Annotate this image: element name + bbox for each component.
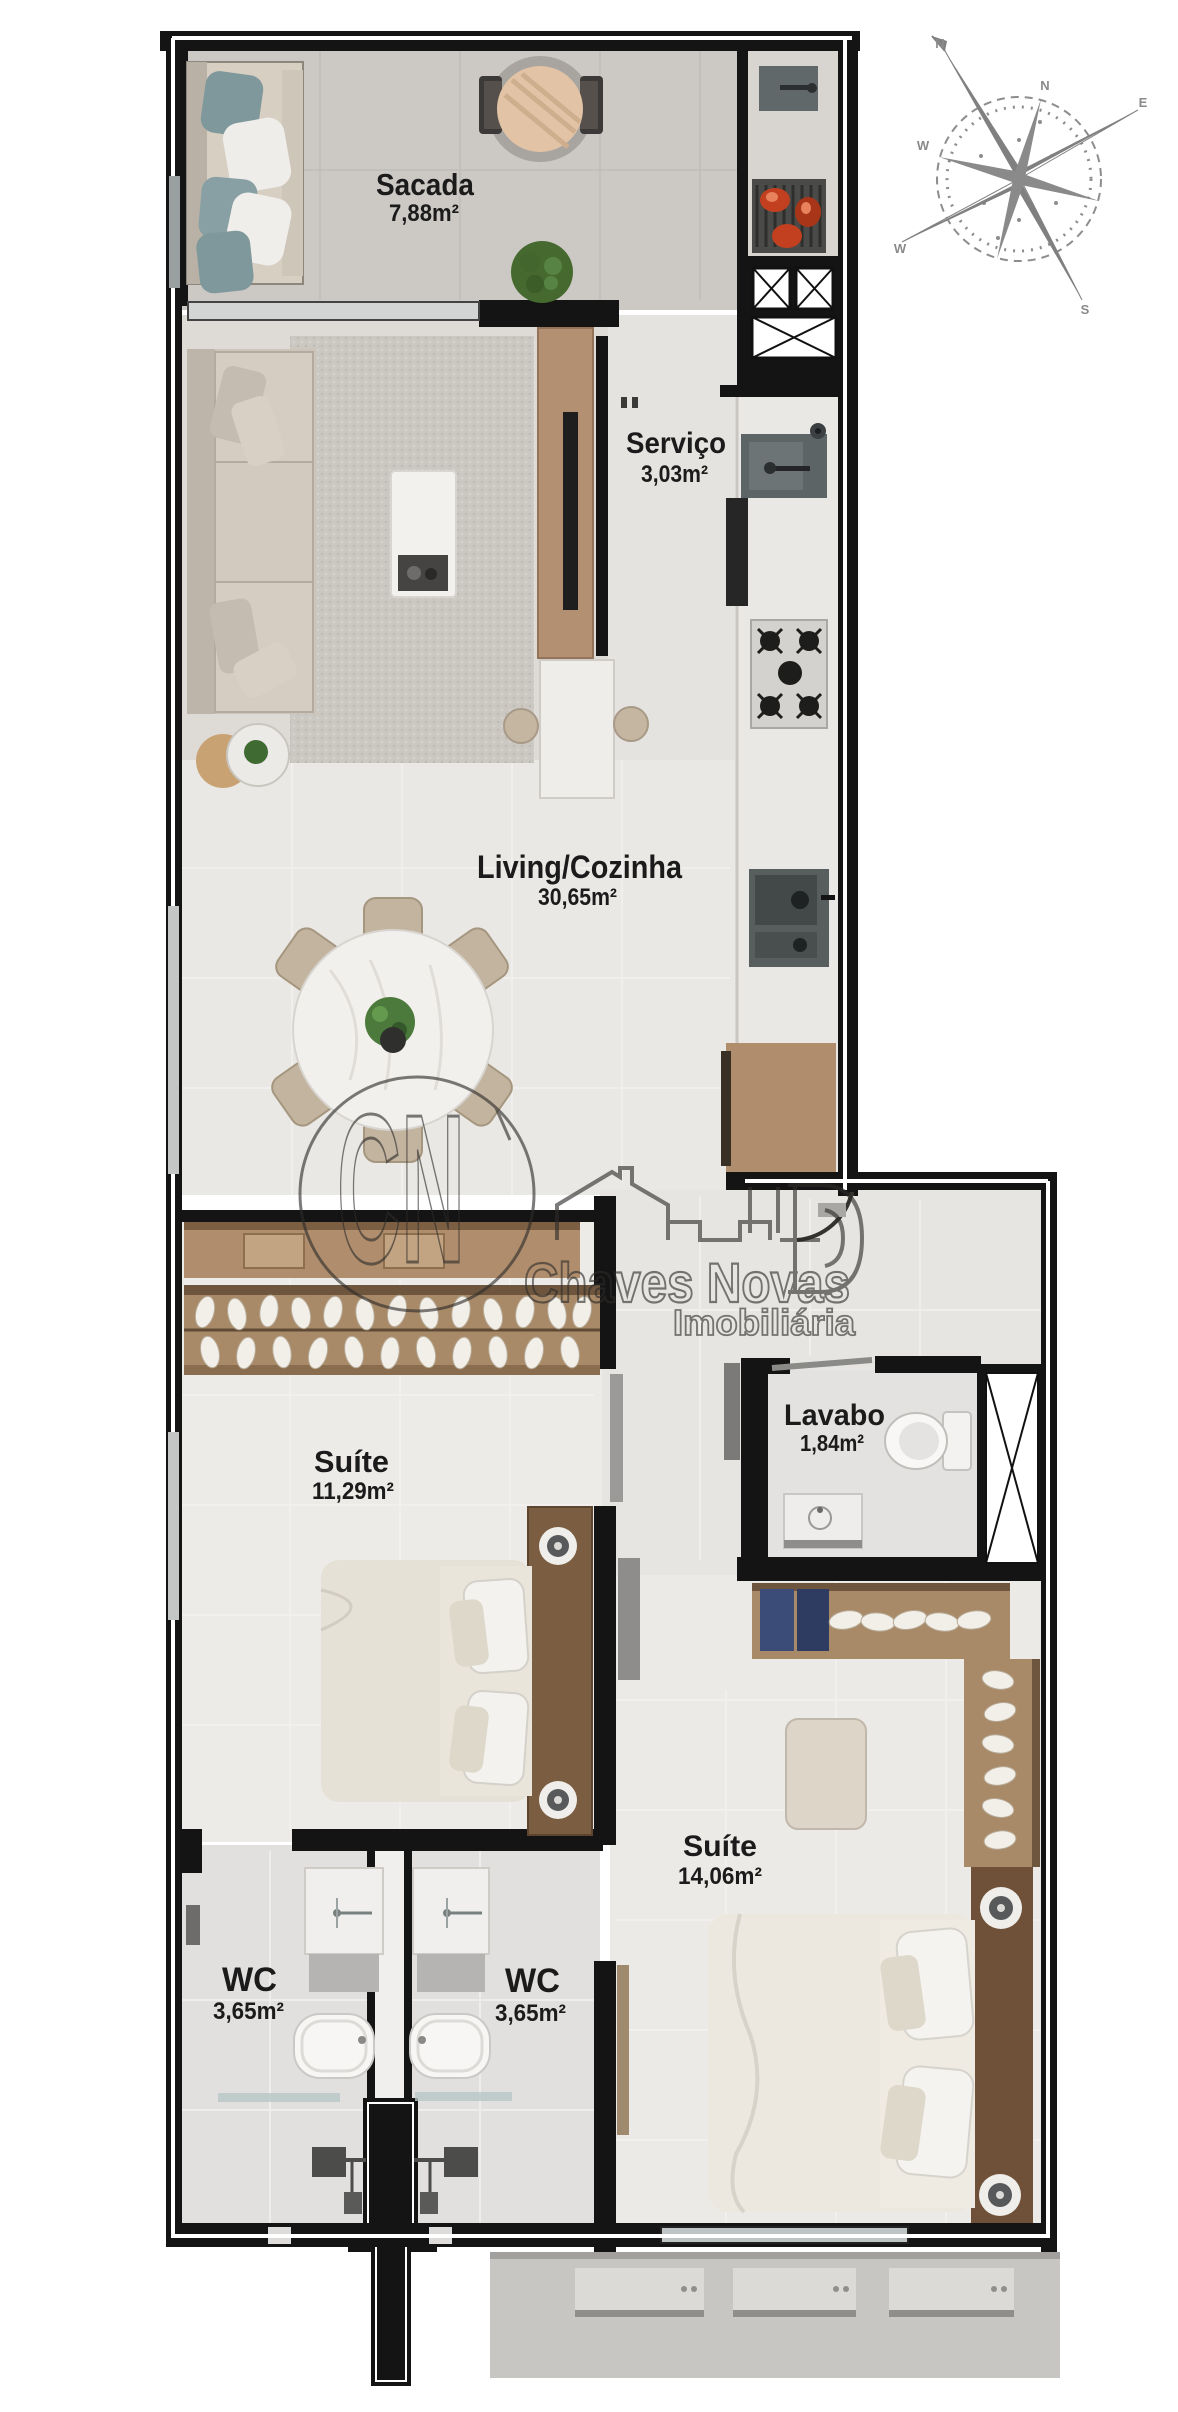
svg-text:WC: WC bbox=[222, 1961, 277, 1999]
svg-text:S: S bbox=[1081, 302, 1090, 317]
svg-text:W: W bbox=[894, 241, 907, 256]
svg-text:WC: WC bbox=[505, 1962, 560, 2000]
svg-text:W: W bbox=[917, 138, 930, 153]
svg-text:Living/Cozinha: Living/Cozinha bbox=[477, 849, 682, 885]
svg-text:Suíte: Suíte bbox=[314, 1444, 389, 1479]
svg-text:30,65m²: 30,65m² bbox=[538, 884, 617, 911]
svg-text:1,84m²: 1,84m² bbox=[800, 1430, 864, 1456]
svg-text:Serviço: Serviço bbox=[626, 427, 726, 460]
svg-text:Suíte: Suíte bbox=[683, 1830, 757, 1863]
svg-text:N: N bbox=[935, 36, 944, 51]
svg-text:N: N bbox=[1040, 78, 1049, 93]
svg-text:CN: CN bbox=[337, 1070, 465, 1307]
svg-text:3,65m²: 3,65m² bbox=[495, 2000, 566, 2027]
svg-text:Lavabo: Lavabo bbox=[784, 1399, 885, 1432]
svg-text:Sacada: Sacada bbox=[376, 167, 475, 202]
svg-text:14,06m²: 14,06m² bbox=[678, 1863, 762, 1890]
svg-text:3,03m²: 3,03m² bbox=[641, 461, 708, 488]
svg-text:3,65m²: 3,65m² bbox=[213, 1998, 284, 2025]
svg-text:7,88m²: 7,88m² bbox=[389, 200, 459, 227]
svg-text:E: E bbox=[1139, 95, 1148, 110]
svg-text:11,29m²: 11,29m² bbox=[312, 1478, 394, 1505]
svg-text:Imobiliária: Imobiliária bbox=[673, 1302, 856, 1343]
